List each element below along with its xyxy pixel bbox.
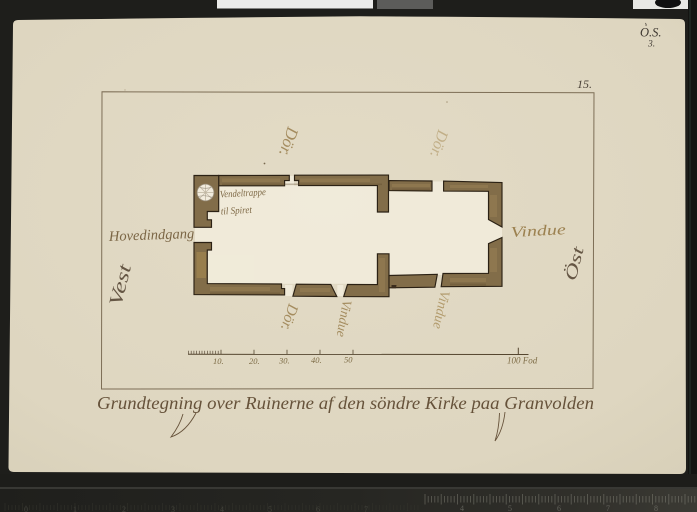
svg-text:O.S.: O.S. [640,26,662,40]
svg-text:til Spiret: til Spiret [221,205,253,218]
svg-text:4: 4 [220,505,224,512]
svg-text:7: 7 [364,505,368,512]
svg-text:6: 6 [316,505,320,512]
svg-text:30.: 30. [278,356,290,366]
svg-text:8: 8 [654,504,658,512]
svg-text:4: 4 [460,504,464,512]
svg-text:1: 1 [73,505,77,512]
svg-text:5: 5 [508,504,512,512]
svg-text:3: 3 [171,505,175,512]
svg-text:20.: 20. [249,356,260,366]
svg-text:50: 50 [344,355,353,365]
svg-text:10.: 10. [213,356,224,366]
svg-text:100 Fod: 100 Fod [507,356,538,366]
svg-text:40.: 40. [311,355,322,365]
svg-text:15.: 15. [577,77,592,91]
svg-text:7: 7 [606,504,610,512]
svg-text:Vindue: Vindue [510,222,566,241]
svg-text:6: 6 [557,504,561,512]
svg-text:Hovedindgang: Hovedindgang [108,226,195,245]
svg-text:2: 2 [122,505,126,512]
svg-text:Grundtegning over Ruinerne af: Grundtegning over Ruinerne af den söndre… [97,393,594,413]
svg-text:0: 0 [24,505,28,512]
svg-text:5: 5 [268,505,272,512]
svg-text:3.: 3. [647,40,655,50]
